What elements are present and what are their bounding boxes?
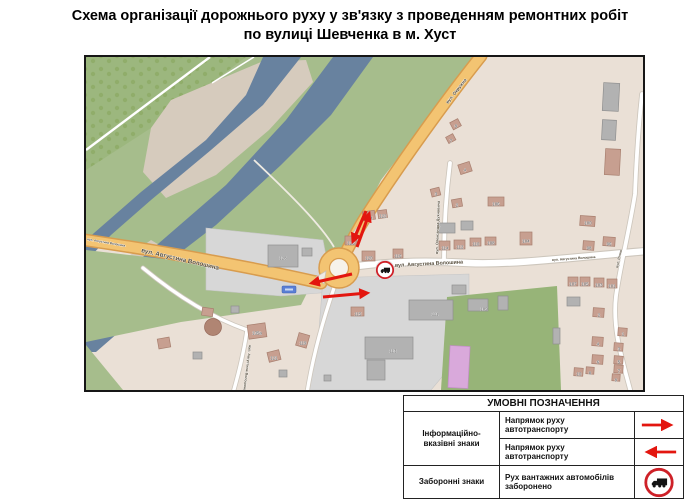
building-number: 113 (390, 349, 397, 354)
legend-row2-description: Напрямок руху автотранспорту (500, 439, 635, 466)
building-number: 135а (252, 331, 262, 336)
building-number: 96 (607, 242, 612, 247)
building-number: 105 (581, 282, 589, 287)
purple-building (448, 346, 470, 389)
building-number: 106 (492, 202, 500, 207)
legend-row3-symbol (635, 466, 683, 498)
no-trucks-sign-icon (641, 467, 677, 498)
building-number: 109 (480, 307, 488, 312)
building-number: 104 (522, 239, 530, 244)
legend-row1-description: Напрямок руху автотранспорту (500, 412, 635, 439)
page-title: Схема організації дорожнього руху у зв'я… (0, 7, 700, 45)
legend-table: УМОВНІ ПОЗНАЧЕННЯ Інформаційно-вказівні … (403, 395, 684, 499)
map-canvas: 128 126 124 122 120 116 114 112 110 108 … (86, 57, 643, 390)
no-trucks-sign-icon (375, 260, 394, 279)
building-number: 107 (569, 282, 577, 287)
title-line-1: Схема організації дорожнього руху у зв'я… (0, 7, 700, 26)
building-number: 119 (300, 341, 307, 346)
building-number: 112 (457, 245, 464, 250)
legend-header: УМОВНІ ПОЗНАЧЕННЯ (404, 396, 683, 412)
legend-row1-symbol (635, 412, 683, 439)
building-number: 115 (355, 312, 362, 317)
building-number: 116 (395, 254, 402, 259)
title-line-2: по вулиці Шевченка в м. Хуст (0, 26, 700, 45)
building-number: 100 (584, 221, 592, 226)
building-number: 122 (379, 214, 387, 219)
page: { "title": { "line1": "Схема організації… (0, 0, 700, 499)
arrow-right-icon (639, 419, 679, 431)
legend-row2-symbol (635, 439, 683, 466)
arrow-left-icon (639, 446, 679, 458)
building-number: 10 (577, 372, 582, 377)
building-number: 128 (279, 256, 287, 261)
building-number: 103 (595, 283, 603, 288)
building-number: 111 (432, 312, 439, 317)
building-number: 114 (442, 246, 449, 251)
legend-category-prohibition-signs: Заборонні знаки (404, 466, 500, 498)
route-shield-icon (282, 286, 296, 293)
legend-category-informational-signs: Інформаційно-вказівні знаки (404, 412, 500, 466)
map: 128 126 124 122 120 116 114 112 110 108 … (84, 55, 645, 392)
building-number: 110 (473, 242, 480, 247)
building-number: 98 (587, 246, 592, 251)
legend-row3-description: Рух вантажних автомобілів заборонено (500, 466, 635, 498)
building-number: 121 (270, 356, 278, 361)
building-number: 120 (365, 256, 373, 261)
building-number: 101 (608, 284, 616, 289)
building-number: 108 (487, 241, 495, 246)
